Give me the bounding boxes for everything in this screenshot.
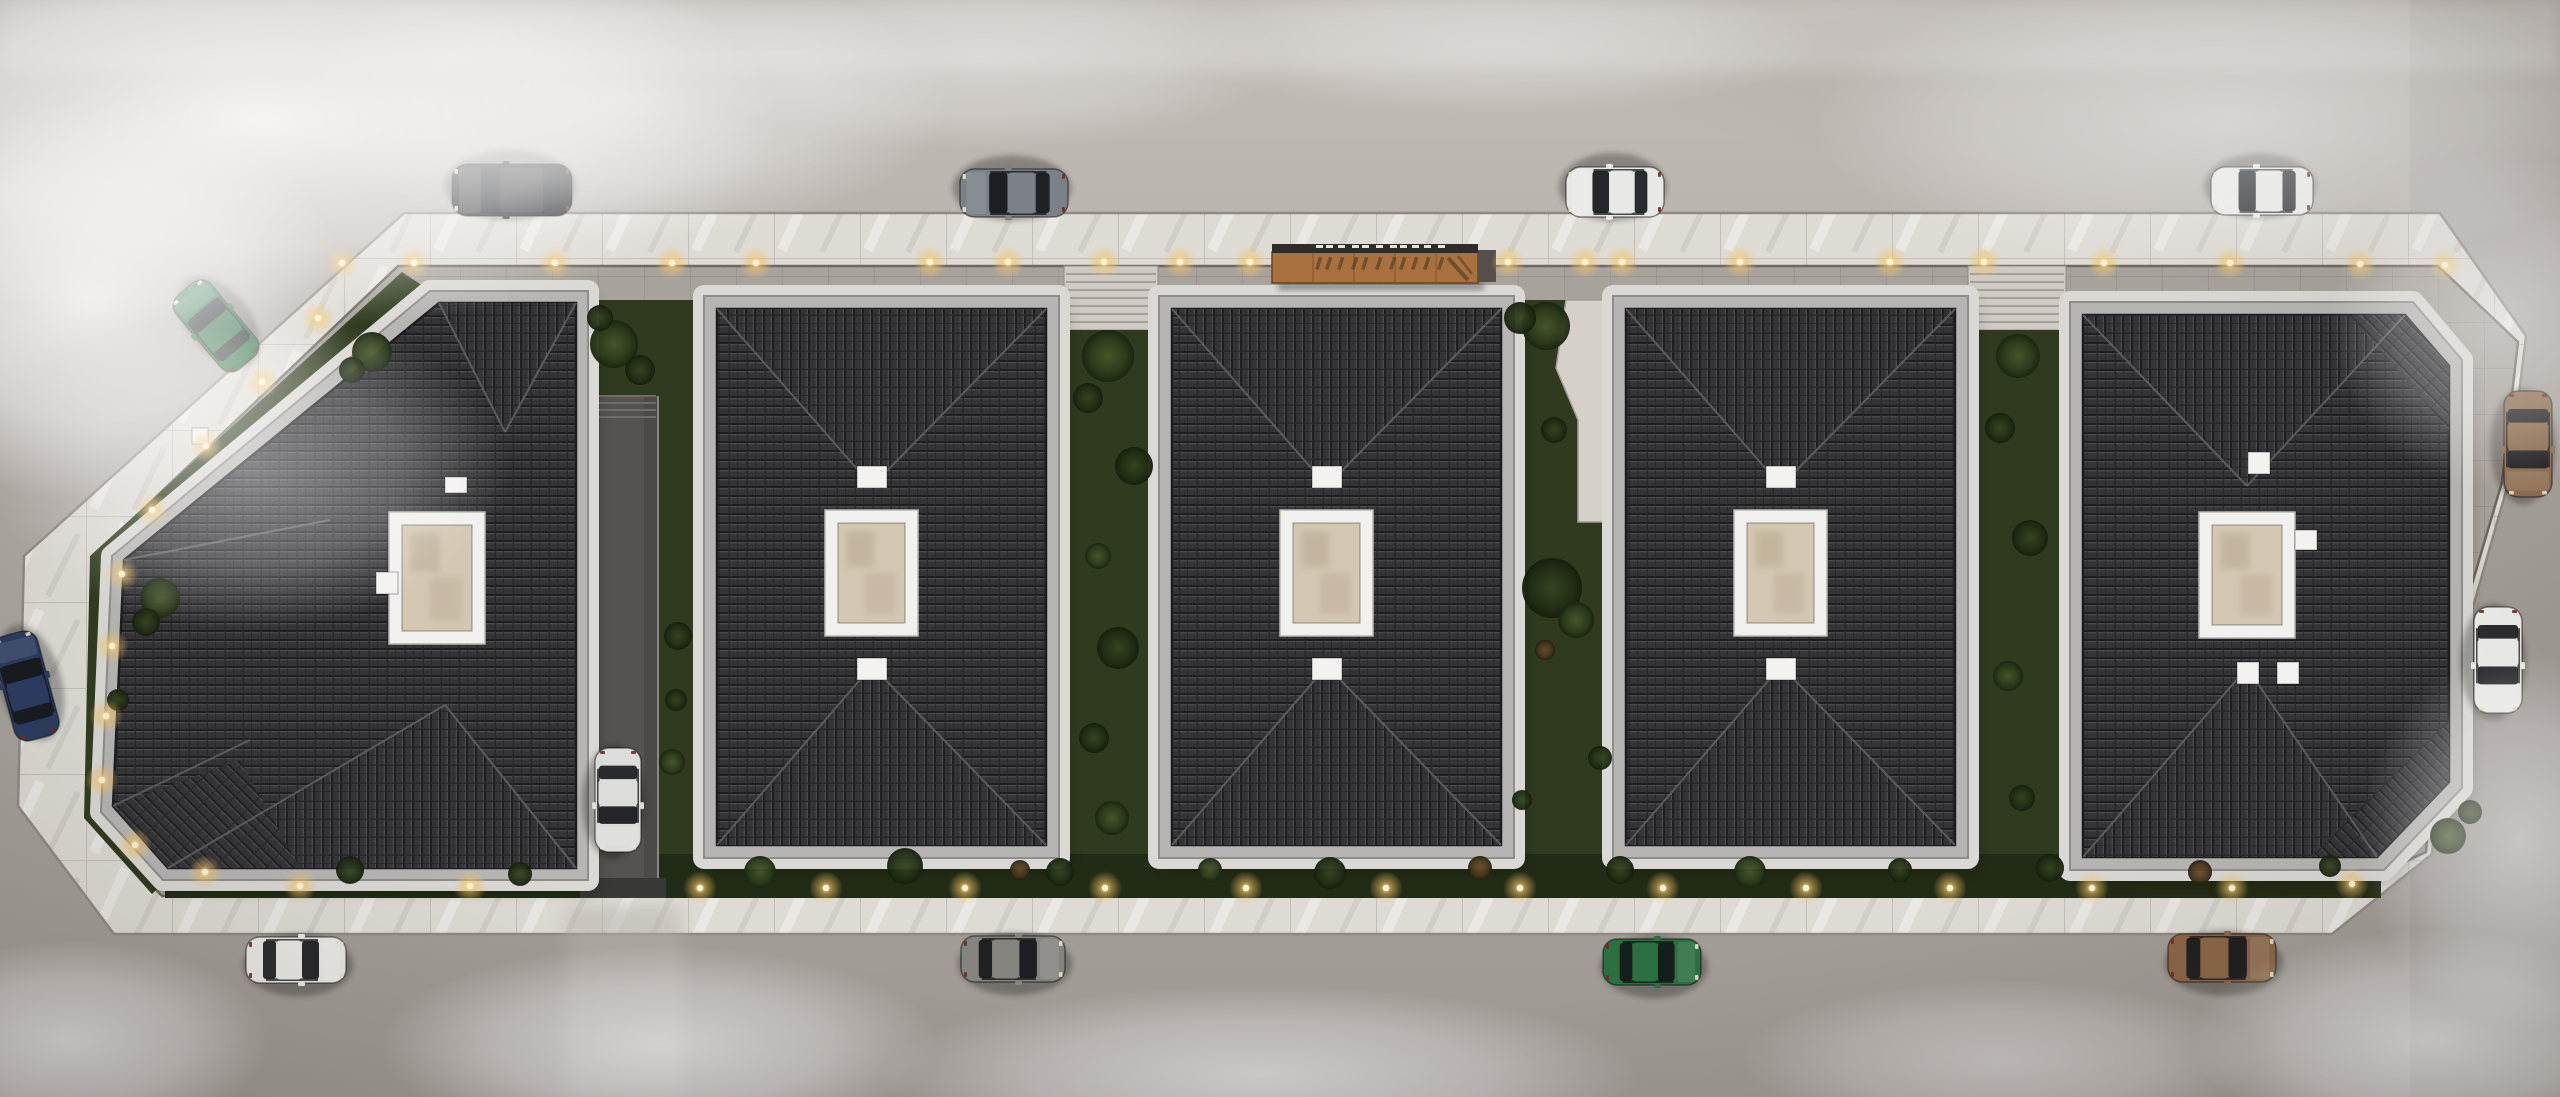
fog-cloud [0, 310, 510, 630]
scene-canvas [0, 0, 2560, 1097]
aerial-site-plan-render [0, 0, 2560, 1097]
layer-atmosphere [0, 0, 2560, 1097]
